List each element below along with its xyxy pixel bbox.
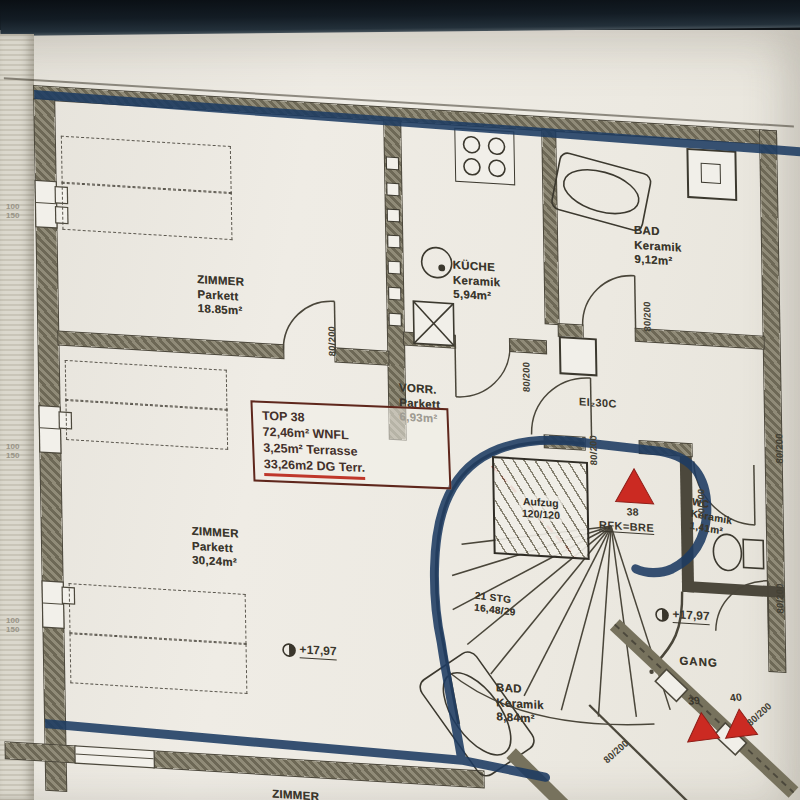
room-label-bad-1: BADKeramik9,12m² (634, 223, 682, 269)
door-arc (715, 578, 769, 634)
door-arc (455, 342, 511, 400)
margin-dimension: 100150 (6, 442, 19, 460)
shaft-cross-box (413, 301, 454, 345)
apartment-number-39: 39 (687, 694, 700, 707)
blue-marker-bottom (34, 720, 546, 777)
elevator-label: Aufzug120/120 (519, 494, 563, 523)
room-label-zimmer-2: ZIMMERParkett30,24m² (191, 524, 239, 570)
unit-roof-terrace: 33,26m2 DG Terr. (264, 456, 366, 480)
door-size-label: 80/200 (641, 301, 653, 332)
level-marker-corridor: +17,97 (654, 606, 709, 625)
door-arc (582, 272, 636, 328)
paper-edge-strip: 100150 100150 100150 (0, 34, 34, 800)
fire-door-label: EI₂30C (579, 395, 617, 409)
bathtub-icon (551, 151, 652, 232)
level-marker-room: +17,97 (281, 641, 336, 660)
margin-dimension: 100150 (6, 202, 19, 220)
door-size-label: 70/200 (695, 488, 707, 519)
apartment-number-40: 40 (729, 690, 742, 703)
diagonal-wing-walls (509, 618, 795, 800)
door-size-label: 80/200 (326, 326, 338, 357)
margin-dimension: 100150 (6, 616, 19, 634)
door-size-label: 80/200 (773, 433, 785, 464)
toilet-icon (713, 534, 764, 573)
room-label-zimmer-1: ZIMMERParkett18.85m² (197, 272, 245, 318)
door-size-label: 80/200 (774, 583, 786, 614)
floor-plan: Aufzug120/120 ZIMMERParkett18.85m² KÜCHE… (34, 86, 800, 800)
room-label-bad-2: BADKeramik8,84m² (496, 680, 544, 726)
door-size-label: 80/200 (520, 361, 532, 392)
unit-info-box: TOP 38 72,46m² WNFL 3,25m² Terrasse 33,2… (250, 400, 451, 489)
door-size-label: 80/200 (587, 435, 599, 466)
sink-icon (421, 247, 452, 279)
elevator: Aufzug120/120 (492, 456, 590, 560)
level-marker-icon (281, 642, 296, 658)
level-marker-icon (654, 606, 669, 622)
apartment-triangle-38 (615, 468, 654, 504)
stove-burners-icon (463, 136, 505, 177)
room-label-kueche: KÜCHEKeramik5,94m² (453, 258, 501, 304)
room-label-gang: GANG (679, 653, 718, 670)
room-label-zimmer-3: ZIMMER (272, 787, 319, 800)
apartment-number-38: 38 (627, 505, 639, 518)
